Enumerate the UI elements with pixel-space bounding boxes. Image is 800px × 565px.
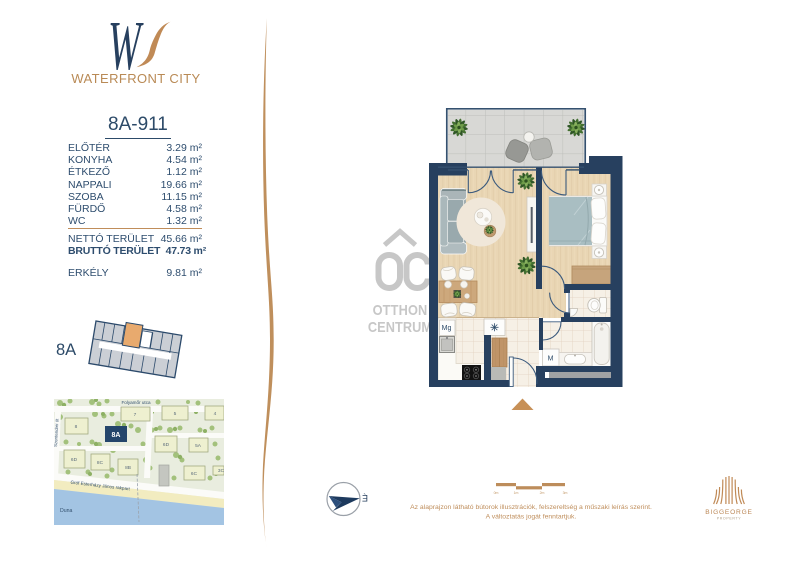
svg-text:M: M <box>548 355 554 362</box>
svg-text:Az alaprajzon látható bútorok: Az alaprajzon látható bútorok illusztrác… <box>410 504 652 511</box>
svg-text:Duna: Duna <box>60 508 73 514</box>
svg-text:5: 5 <box>174 411 177 417</box>
svg-text:6D: 6D <box>163 442 170 448</box>
svg-text:A változtatás jogát fenntartju: A változtatás jogát fenntartjuk. <box>486 514 577 521</box>
svg-text:OTTHON: OTTHON <box>373 301 428 318</box>
svg-text:6D: 6D <box>71 457 78 463</box>
svg-text:Folyamőr utca: Folyamőr utca <box>121 400 151 405</box>
svg-text:2m: 2m <box>540 491 545 495</box>
svg-text:É: É <box>362 494 368 504</box>
svg-text:0m: 0m <box>494 491 499 495</box>
svg-text:CENTRUM: CENTRUM <box>368 318 432 335</box>
svg-text:8: 8 <box>75 424 78 430</box>
svg-text:7: 7 <box>134 412 137 418</box>
svg-text:8C: 8C <box>97 460 104 466</box>
svg-text:BIGGEORGE: BIGGEORGE <box>705 509 753 516</box>
svg-text:Mg: Mg <box>442 325 452 332</box>
svg-text:3C: 3C <box>218 468 225 474</box>
svg-text:4: 4 <box>214 411 217 417</box>
svg-text:8A: 8A <box>112 432 121 439</box>
svg-text:3m: 3m <box>563 491 568 495</box>
svg-text:5A: 5A <box>195 443 202 449</box>
svg-text:8B: 8B <box>125 465 131 471</box>
svg-text:1m: 1m <box>514 491 519 495</box>
svg-text:6C: 6C <box>191 471 198 477</box>
svg-text:PROPERTY: PROPERTY <box>717 516 742 520</box>
